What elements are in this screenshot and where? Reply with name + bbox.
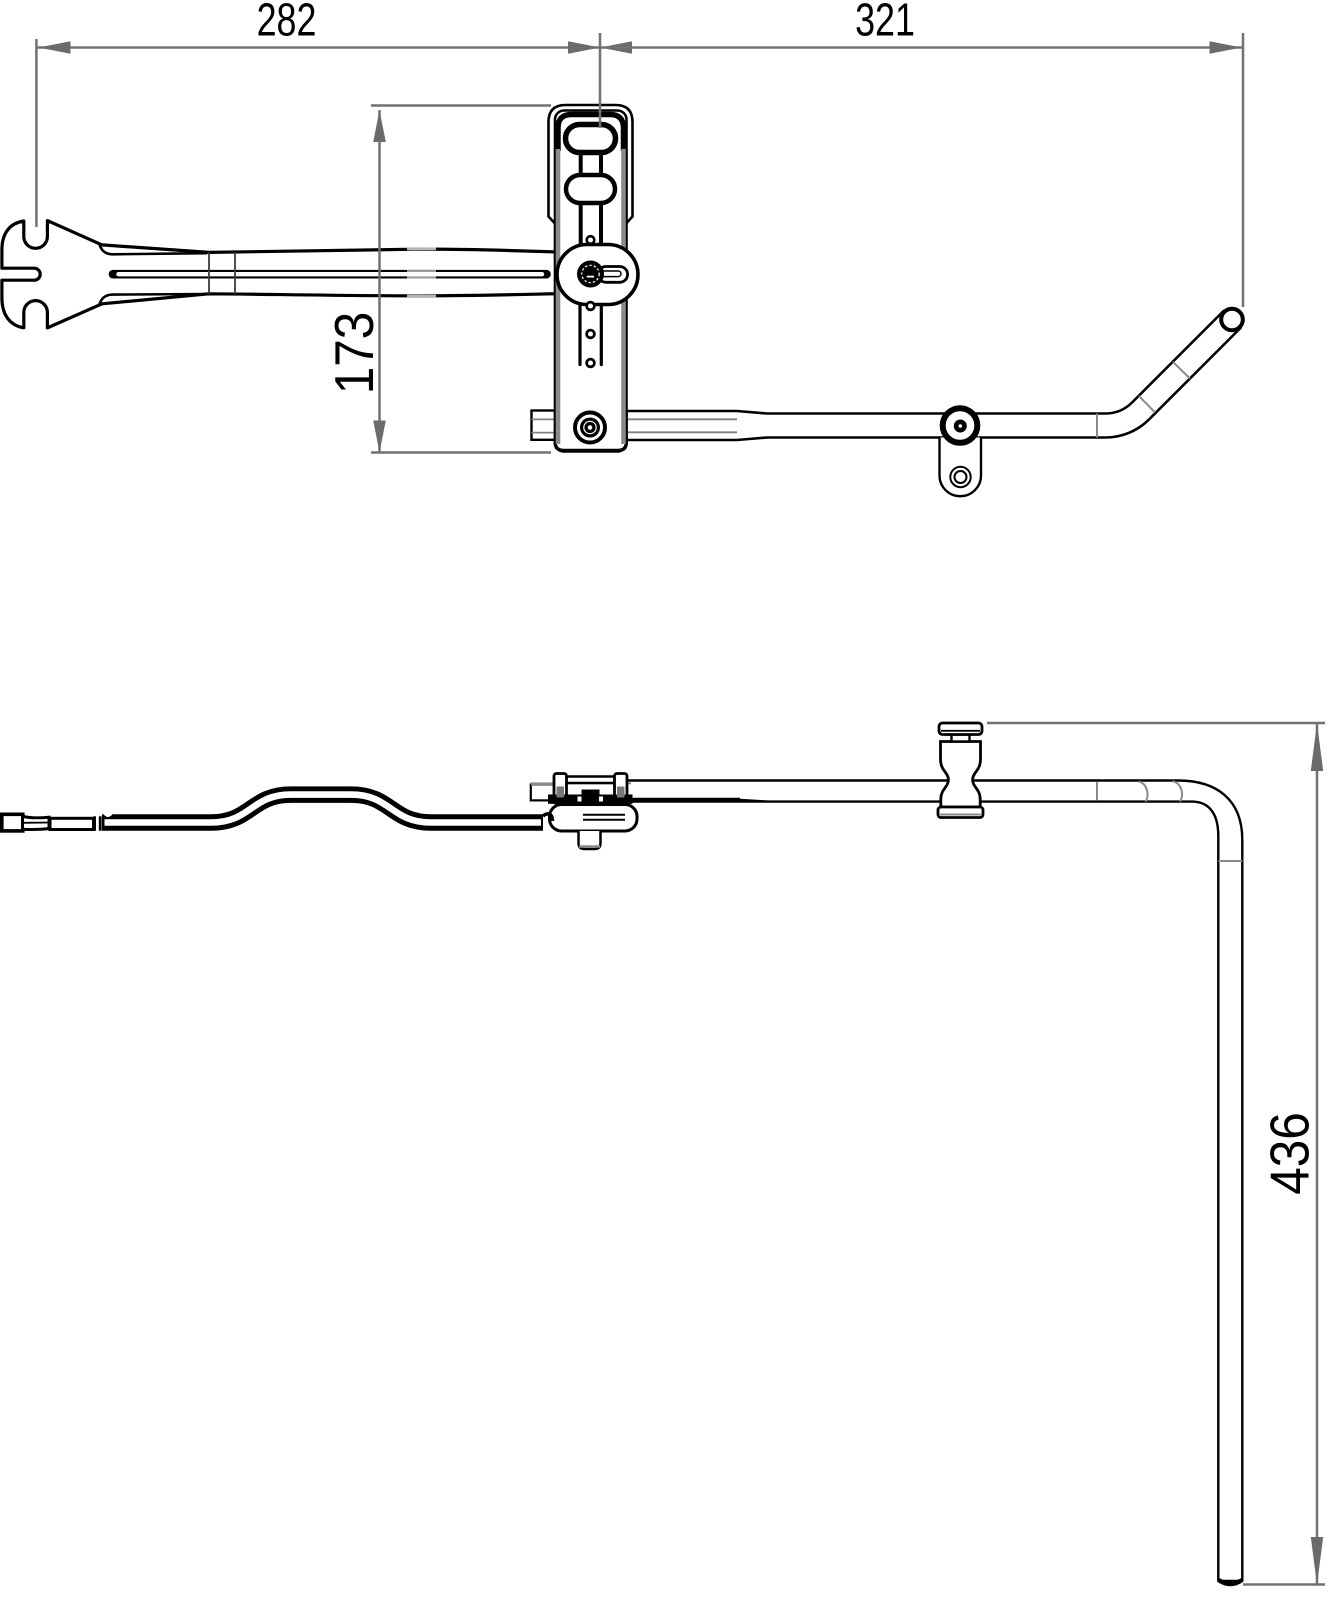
- svg-text:321: 321: [855, 0, 915, 46]
- svg-text:436: 436: [1260, 1112, 1321, 1195]
- svg-text:173: 173: [325, 312, 386, 395]
- svg-text:282: 282: [257, 0, 317, 46]
